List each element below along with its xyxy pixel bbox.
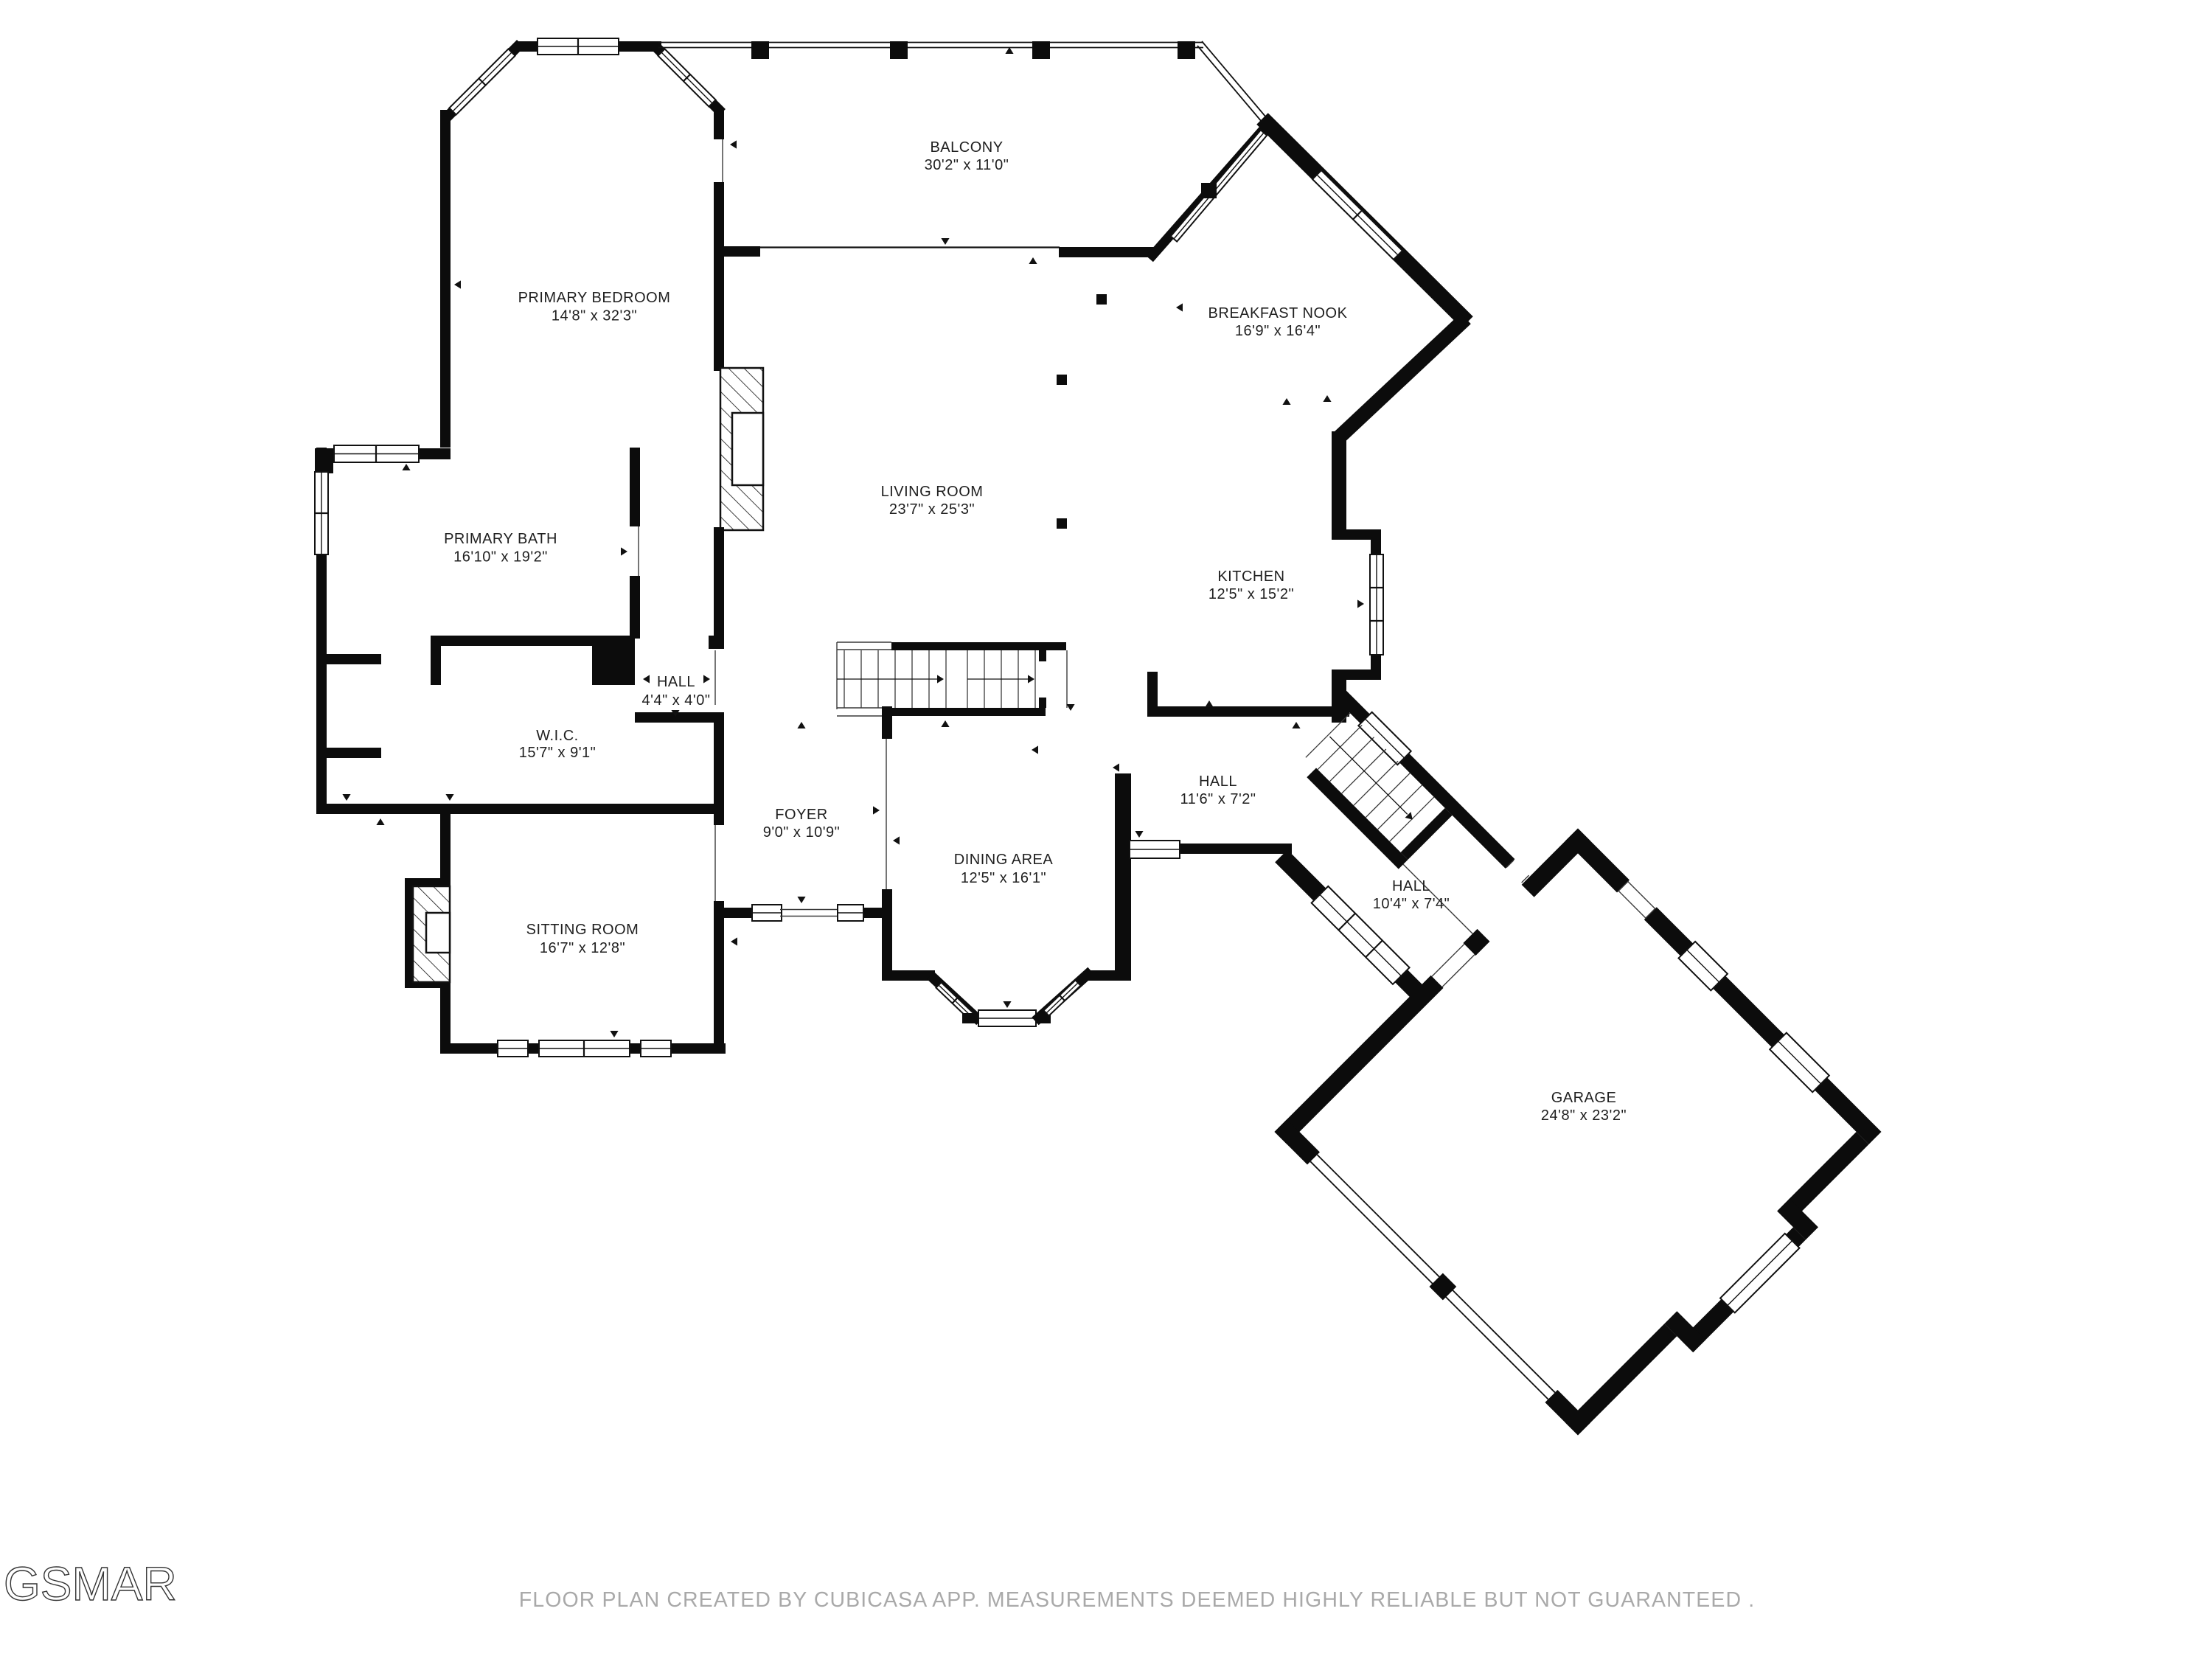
svg-text:KITCHEN: KITCHEN (1217, 568, 1284, 585)
svg-text:9'0" x 10'9": 9'0" x 10'9" (763, 824, 841, 841)
svg-text:16'9" x 16'4": 16'9" x 16'4" (1235, 323, 1321, 339)
svg-text:23'7" x 25'3": 23'7" x 25'3" (889, 501, 975, 518)
svg-text:LIVING ROOM: LIVING ROOM (881, 484, 984, 500)
svg-text:14'8" x 32'3": 14'8" x 32'3" (552, 308, 637, 324)
svg-text:16'10" x 19'2": 16'10" x 19'2" (453, 549, 548, 566)
svg-text:PRIMARY BATH: PRIMARY BATH (444, 531, 557, 547)
svg-text:16'7" x 12'8": 16'7" x 12'8" (540, 940, 625, 956)
svg-text:BALCONY: BALCONY (930, 139, 1003, 156)
svg-text:10'4" x 7'4": 10'4" x 7'4" (1373, 896, 1450, 912)
svg-text:DINING AREA: DINING AREA (954, 852, 1054, 868)
svg-text:12'5" x 16'1": 12'5" x 16'1" (961, 870, 1046, 886)
svg-text:11'6" x 7'2": 11'6" x 7'2" (1180, 791, 1256, 807)
svg-text:BREAKFAST NOOK: BREAKFAST NOOK (1208, 305, 1348, 321)
svg-text:HALL: HALL (657, 674, 695, 690)
svg-text:W.I.C.: W.I.C. (536, 728, 578, 744)
svg-text:FOYER: FOYER (775, 807, 827, 823)
svg-text:PRIMARY BEDROOM: PRIMARY BEDROOM (518, 290, 671, 306)
svg-text:GARAGE: GARAGE (1551, 1090, 1617, 1106)
svg-text:15'7" x 9'1": 15'7" x 9'1" (519, 745, 597, 761)
svg-text:12'5" x 15'2": 12'5" x 15'2" (1208, 586, 1294, 602)
svg-text:FLOOR PLAN CREATED BY CUBICASA: FLOOR PLAN CREATED BY CUBICASA APP. MEAS… (519, 1588, 1756, 1612)
svg-text:SITTING ROOM: SITTING ROOM (526, 922, 639, 938)
svg-text:HALL: HALL (1199, 773, 1237, 790)
svg-text:24'8" x 23'2": 24'8" x 23'2" (1541, 1107, 1627, 1124)
svg-text:GSMAR: GSMAR (4, 1557, 177, 1610)
svg-text:4'4" x 4'0": 4'4" x 4'0" (642, 692, 711, 709)
svg-text:HALL: HALL (1392, 878, 1430, 894)
svg-text:30'2" x 11'0": 30'2" x 11'0" (925, 157, 1009, 173)
